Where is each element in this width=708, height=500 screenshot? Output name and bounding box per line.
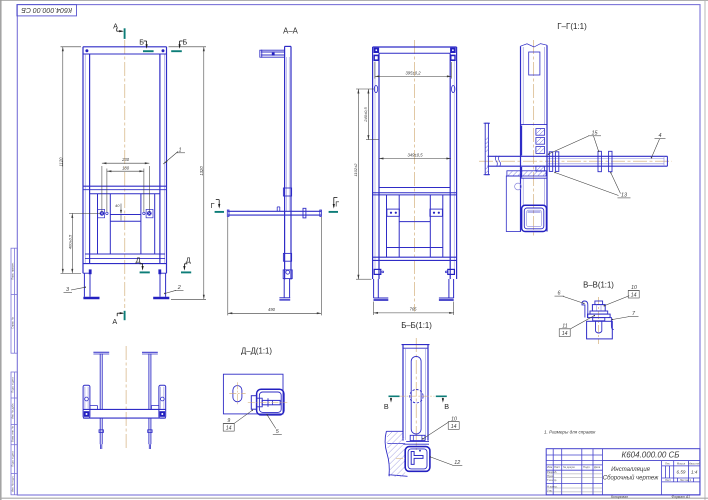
svg-text:Подп.: Подп. xyxy=(583,465,591,469)
svg-text:400±0,5: 400±0,5 xyxy=(68,234,73,249)
svg-text:А–А: А–А xyxy=(283,27,299,36)
svg-text:Сборочный чертеж: Сборочный чертеж xyxy=(603,474,659,481)
svg-text:40: 40 xyxy=(115,203,120,208)
svg-text:1120: 1120 xyxy=(58,157,63,167)
svg-text:1102±2: 1102±2 xyxy=(353,163,358,177)
svg-text:12: 12 xyxy=(454,460,460,466)
svg-text:Дата: Дата xyxy=(594,465,601,469)
svg-text:Б: Б xyxy=(182,38,187,47)
svg-text:1: 1 xyxy=(179,147,182,153)
svg-text:Г–Г(1:1): Г–Г(1:1) xyxy=(557,22,587,31)
svg-text:230: 230 xyxy=(121,157,130,162)
svg-text:Масса: Масса xyxy=(677,461,686,465)
svg-text:11: 11 xyxy=(562,323,567,329)
svg-text:14: 14 xyxy=(562,331,568,337)
svg-text:1320: 1320 xyxy=(199,166,204,176)
svg-text:2: 2 xyxy=(177,285,181,291)
svg-text:К604.000.00 СБ: К604.000.00 СБ xyxy=(622,451,680,460)
svg-text:180: 180 xyxy=(122,165,130,170)
svg-text:В: В xyxy=(444,402,449,411)
svg-text:Лит.: Лит. xyxy=(665,461,670,465)
svg-text:Б–Б(1:1): Б–Б(1:1) xyxy=(401,321,432,330)
svg-text:А: А xyxy=(112,317,117,326)
svg-text:Взам. инв. №: Взам. инв. № xyxy=(11,426,15,442)
svg-text:Лист: Лист xyxy=(554,465,561,469)
svg-text:14: 14 xyxy=(226,426,232,432)
svg-text:Инв. № дубл.: Инв. № дубл. xyxy=(11,403,15,419)
svg-text:765: 765 xyxy=(410,307,418,312)
svg-text:Т.контр.: Т.контр. xyxy=(547,478,557,482)
svg-text:Д–Д(1:1): Д–Д(1:1) xyxy=(241,346,272,355)
svg-text:10: 10 xyxy=(631,285,637,291)
svg-text:Д: Д xyxy=(136,256,141,265)
svg-text:Подп. и дата: Подп. и дата xyxy=(11,451,15,467)
svg-text:Формат А1: Формат А1 xyxy=(672,495,691,499)
svg-text:9: 9 xyxy=(227,418,230,424)
svg-text:10: 10 xyxy=(451,416,457,422)
svg-text:Листов 1: Листов 1 xyxy=(680,478,692,482)
svg-text:6: 6 xyxy=(558,291,561,297)
svg-text:1:4: 1:4 xyxy=(691,470,698,475)
svg-text:240±0,5: 240±0,5 xyxy=(363,107,368,123)
svg-text:В–В(1:1): В–В(1:1) xyxy=(583,281,614,290)
svg-text:Б: Б xyxy=(139,38,144,47)
svg-text:4: 4 xyxy=(659,133,662,139)
svg-text:Лист: Лист xyxy=(665,478,672,482)
svg-text:Масштаб: Масштаб xyxy=(688,461,700,465)
svg-text:Копировал: Копировал xyxy=(611,495,628,499)
svg-text:Д: Д xyxy=(186,256,191,265)
svg-text:6.59: 6.59 xyxy=(677,470,686,475)
svg-text:1. Размеры для справок: 1. Размеры для справок xyxy=(544,430,596,435)
svg-text:К604.000.00 СБ: К604.000.00 СБ xyxy=(21,6,72,13)
svg-text:Перв. примен.: Перв. примен. xyxy=(11,262,15,280)
svg-text:13: 13 xyxy=(621,192,627,198)
svg-text:14: 14 xyxy=(451,424,457,430)
svg-text:Инв. № подл.: Инв. № подл. xyxy=(11,476,15,492)
svg-text:Г: Г xyxy=(335,200,339,209)
svg-text:15: 15 xyxy=(592,130,599,136)
svg-text:3: 3 xyxy=(66,287,69,293)
svg-text:Г: Г xyxy=(211,201,215,210)
svg-text:Инсталляция: Инсталляция xyxy=(611,467,651,473)
svg-text:Утв.: Утв. xyxy=(547,488,553,492)
svg-text:А: А xyxy=(113,22,118,31)
svg-text:№ докум.: № докум. xyxy=(563,465,576,469)
svg-text:Подп. и дата: Подп. и дата xyxy=(11,377,15,393)
svg-text:В: В xyxy=(384,402,389,411)
svg-text:395±0,2: 395±0,2 xyxy=(405,70,421,75)
svg-text:349±0,5: 349±0,5 xyxy=(407,152,423,157)
svg-text:14: 14 xyxy=(631,293,637,299)
svg-text:Справ. №: Справ. № xyxy=(11,317,15,329)
svg-text:490: 490 xyxy=(268,307,276,312)
svg-text:Изм: Изм xyxy=(547,465,552,469)
